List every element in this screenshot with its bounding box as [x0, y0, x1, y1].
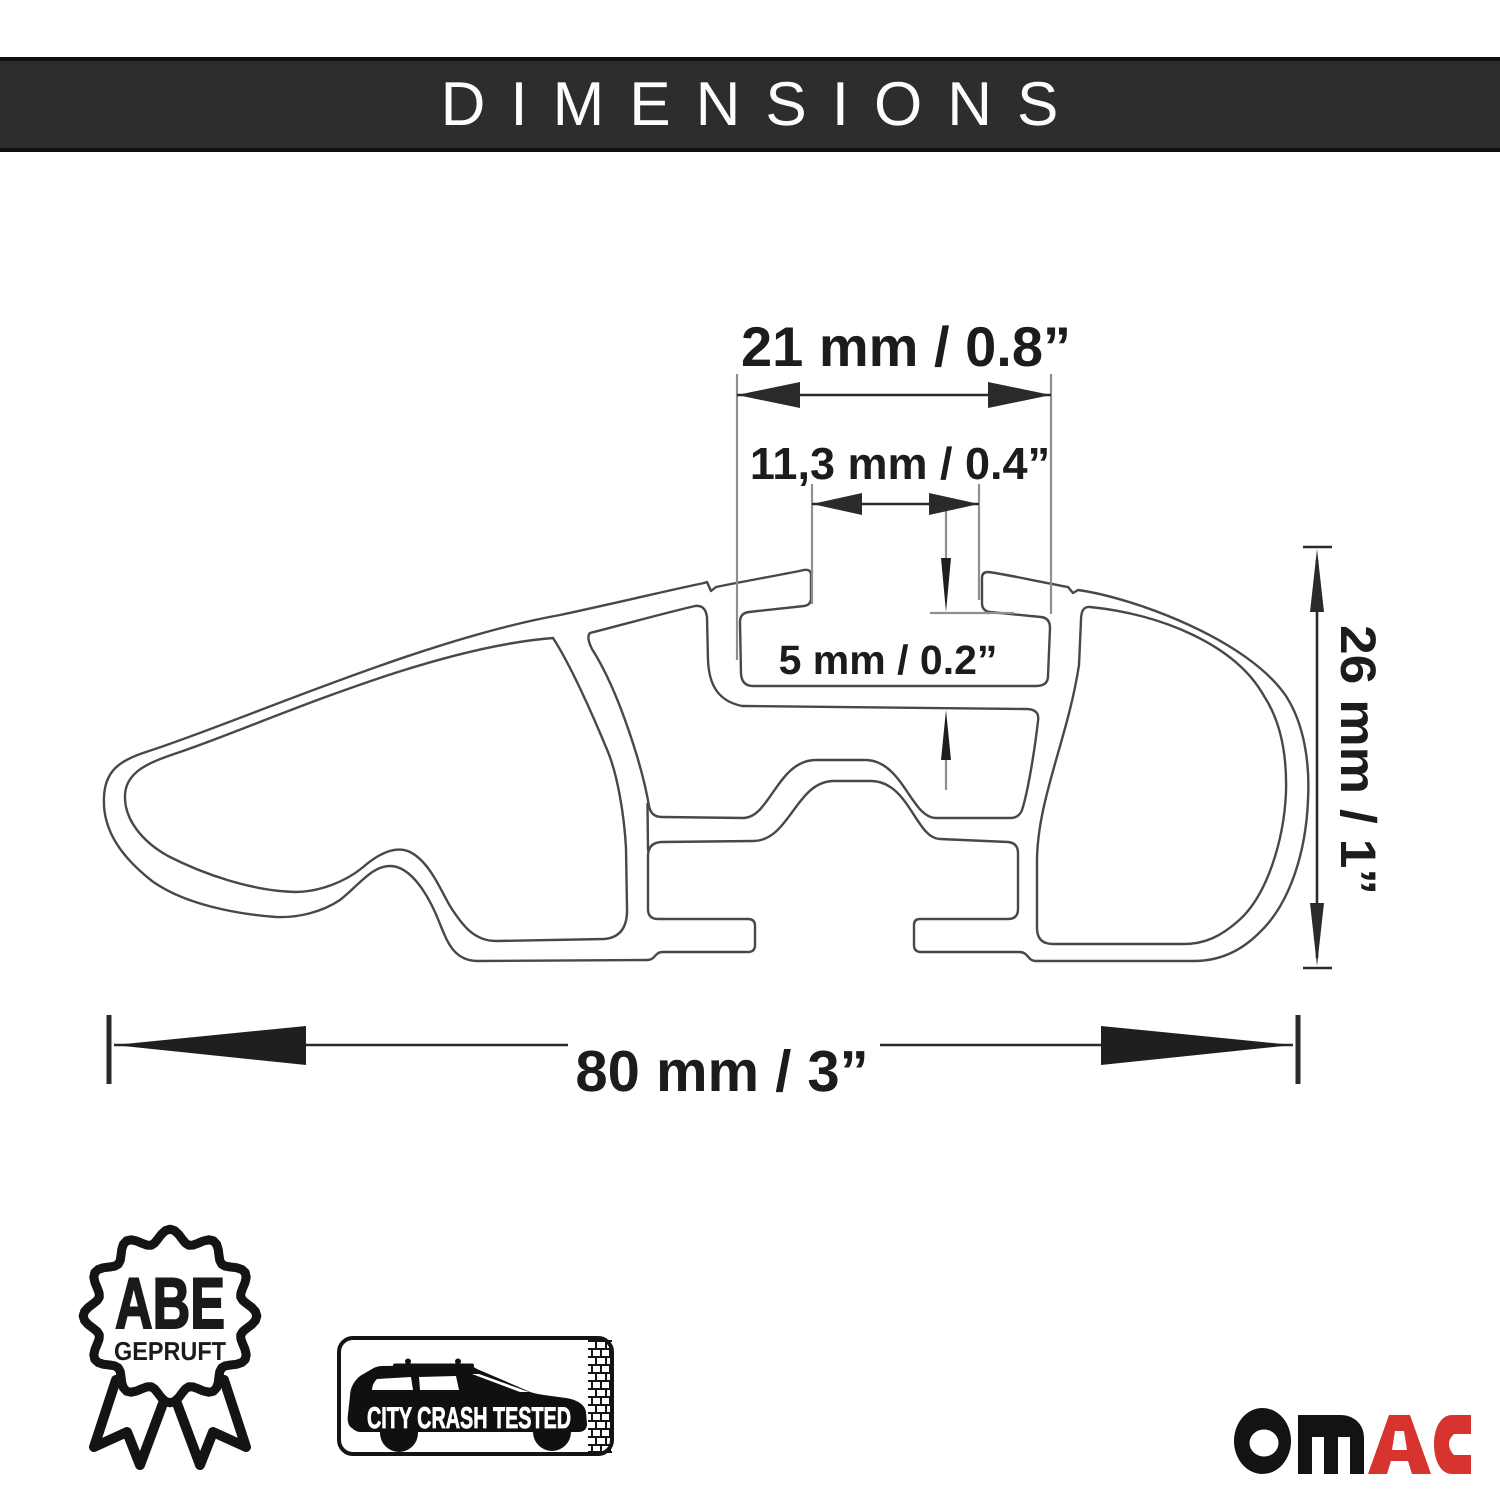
svg-text:26 mm / 1”: 26 mm / 1”	[1330, 625, 1386, 895]
svg-text:21 mm / 0.8”: 21 mm / 0.8”	[741, 315, 1071, 378]
svg-text:GEPRUFT: GEPRUFT	[114, 1336, 226, 1366]
svg-text:5 mm / 0.2”: 5 mm / 0.2”	[779, 637, 998, 683]
svg-text:80 mm / 3”: 80 mm / 3”	[575, 1039, 868, 1104]
svg-text:CITY CRASH TESTED: CITY CRASH TESTED	[367, 1402, 571, 1435]
svg-text:ABE: ABE	[115, 1264, 225, 1344]
svg-text:11,3 mm / 0.4”: 11,3 mm / 0.4”	[750, 438, 1050, 489]
svg-text:DIMENSIONS: DIMENSIONS	[441, 70, 1084, 139]
